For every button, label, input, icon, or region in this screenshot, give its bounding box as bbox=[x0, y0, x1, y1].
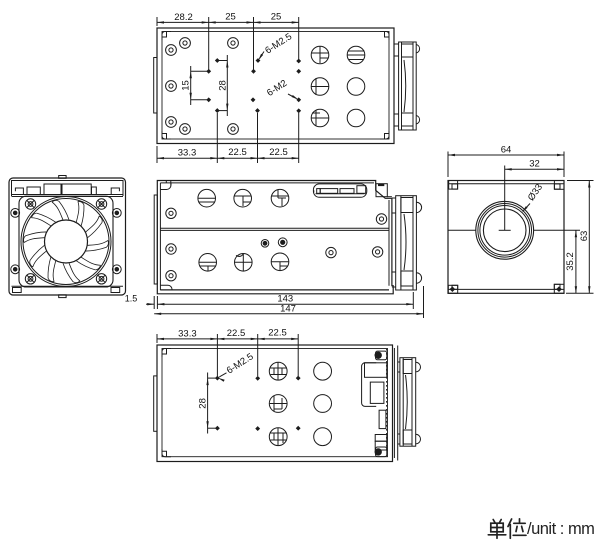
svg-text:64: 64 bbox=[501, 144, 512, 155]
svg-text:/unit : mm: /unit : mm bbox=[527, 520, 594, 538]
svg-text:22.5: 22.5 bbox=[269, 147, 288, 158]
svg-text:15: 15 bbox=[181, 80, 192, 91]
svg-text:63: 63 bbox=[579, 231, 590, 242]
svg-text:22.5: 22.5 bbox=[268, 327, 287, 338]
svg-text:22.5: 22.5 bbox=[228, 147, 247, 158]
svg-text:25: 25 bbox=[225, 12, 236, 23]
svg-text:32: 32 bbox=[529, 159, 540, 170]
svg-text:22.5: 22.5 bbox=[227, 328, 246, 339]
svg-text:25: 25 bbox=[271, 12, 282, 23]
svg-text:35.2: 35.2 bbox=[565, 252, 576, 271]
svg-text:33.3: 33.3 bbox=[178, 148, 197, 159]
svg-text:28: 28 bbox=[197, 398, 208, 409]
svg-text:28: 28 bbox=[217, 80, 228, 91]
svg-text:33.3: 33.3 bbox=[178, 328, 197, 339]
svg-text:1.5: 1.5 bbox=[125, 294, 138, 304]
svg-text:28.2: 28.2 bbox=[174, 12, 193, 23]
svg-text:147: 147 bbox=[280, 303, 296, 314]
